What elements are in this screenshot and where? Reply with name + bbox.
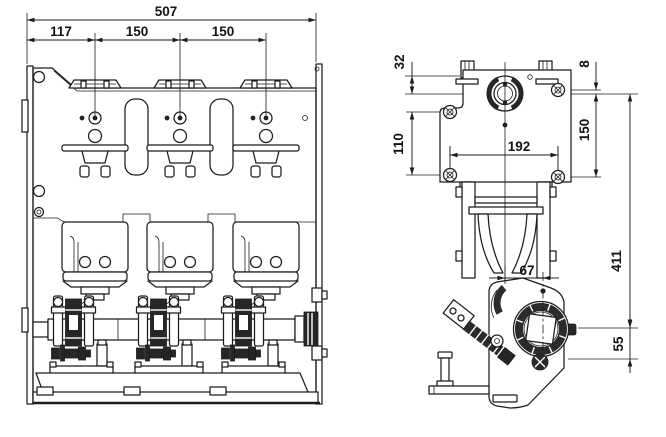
mounting-slot-1 [125, 99, 148, 175]
roller [491, 335, 503, 347]
dim-centerline-to-shaft: 411 [609, 250, 624, 272]
mounting-slot-2 [210, 99, 233, 175]
front-view-dimensions: 507 117 150 150 [27, 4, 316, 118]
base-assembly [33, 362, 320, 403]
dim-shaft-offset: 67 [519, 263, 534, 278]
shaft-coupling [304, 312, 318, 346]
coupling-tab-upper [312, 288, 322, 302]
bracket-slot [493, 395, 517, 402]
dim-right-bolt-spacing: 150 [577, 119, 592, 142]
dim-overall-width: 507 [155, 4, 178, 19]
base-standoff-1 [37, 387, 53, 395]
dim-shaft-to-mount: 55 [611, 336, 626, 352]
bottom-rail [33, 392, 318, 403]
square-drive-hole [526, 314, 556, 344]
dim-left-offset: 117 [50, 24, 72, 39]
base-standoff-3 [210, 387, 226, 395]
dim-top-to-centerline: 32 [392, 54, 407, 69]
drive-shaft-boss [514, 302, 577, 357]
shaft-clamp-2 [137, 296, 181, 361]
base-plate [429, 386, 489, 394]
plate-screw-bottom-left [444, 169, 457, 182]
edge-hole-mid [34, 186, 45, 197]
left-flange-tab-lower [22, 308, 28, 332]
shaft-clamp-1 [52, 296, 96, 361]
front-view: 507 117 150 150 [22, 4, 327, 404]
switchgear-mechanism-drawing: 507 117 150 150 [0, 0, 666, 437]
shaft-clamp-3 [222, 296, 266, 361]
small-hole-right [303, 116, 308, 121]
base-standoff-2 [124, 387, 140, 395]
side-mounting-plate [440, 61, 571, 194]
anchor-bolt-assembly [429, 352, 489, 394]
insulator-arm-left [478, 214, 503, 273]
corner-hole-top-left [34, 72, 45, 83]
dim-pole-pitch-2: 150 [212, 24, 235, 39]
dim-left-bolt-spacing: 110 [391, 133, 406, 155]
dim-bolt-span: 192 [508, 139, 531, 154]
panel-mid-boundary [33, 214, 316, 222]
coupling-tab-lower [312, 346, 322, 360]
side-view: 32 110 8 150 192 411 67 55 [391, 54, 638, 408]
left-flange-tab-upper [22, 100, 28, 132]
dim-pole-pitch-1: 150 [126, 24, 149, 39]
plate-screw-top-right [552, 84, 565, 97]
plate-screw-top-left [444, 106, 457, 119]
frame-channels [456, 182, 556, 278]
edge-screw-mid [35, 208, 44, 217]
dim-centerline-to-top-bolt: 8 [577, 60, 592, 68]
plate-screw-bottom-right [552, 171, 565, 184]
technical-drawing-page: 507 117 150 150 [0, 0, 666, 437]
lower-bolt [532, 354, 548, 370]
